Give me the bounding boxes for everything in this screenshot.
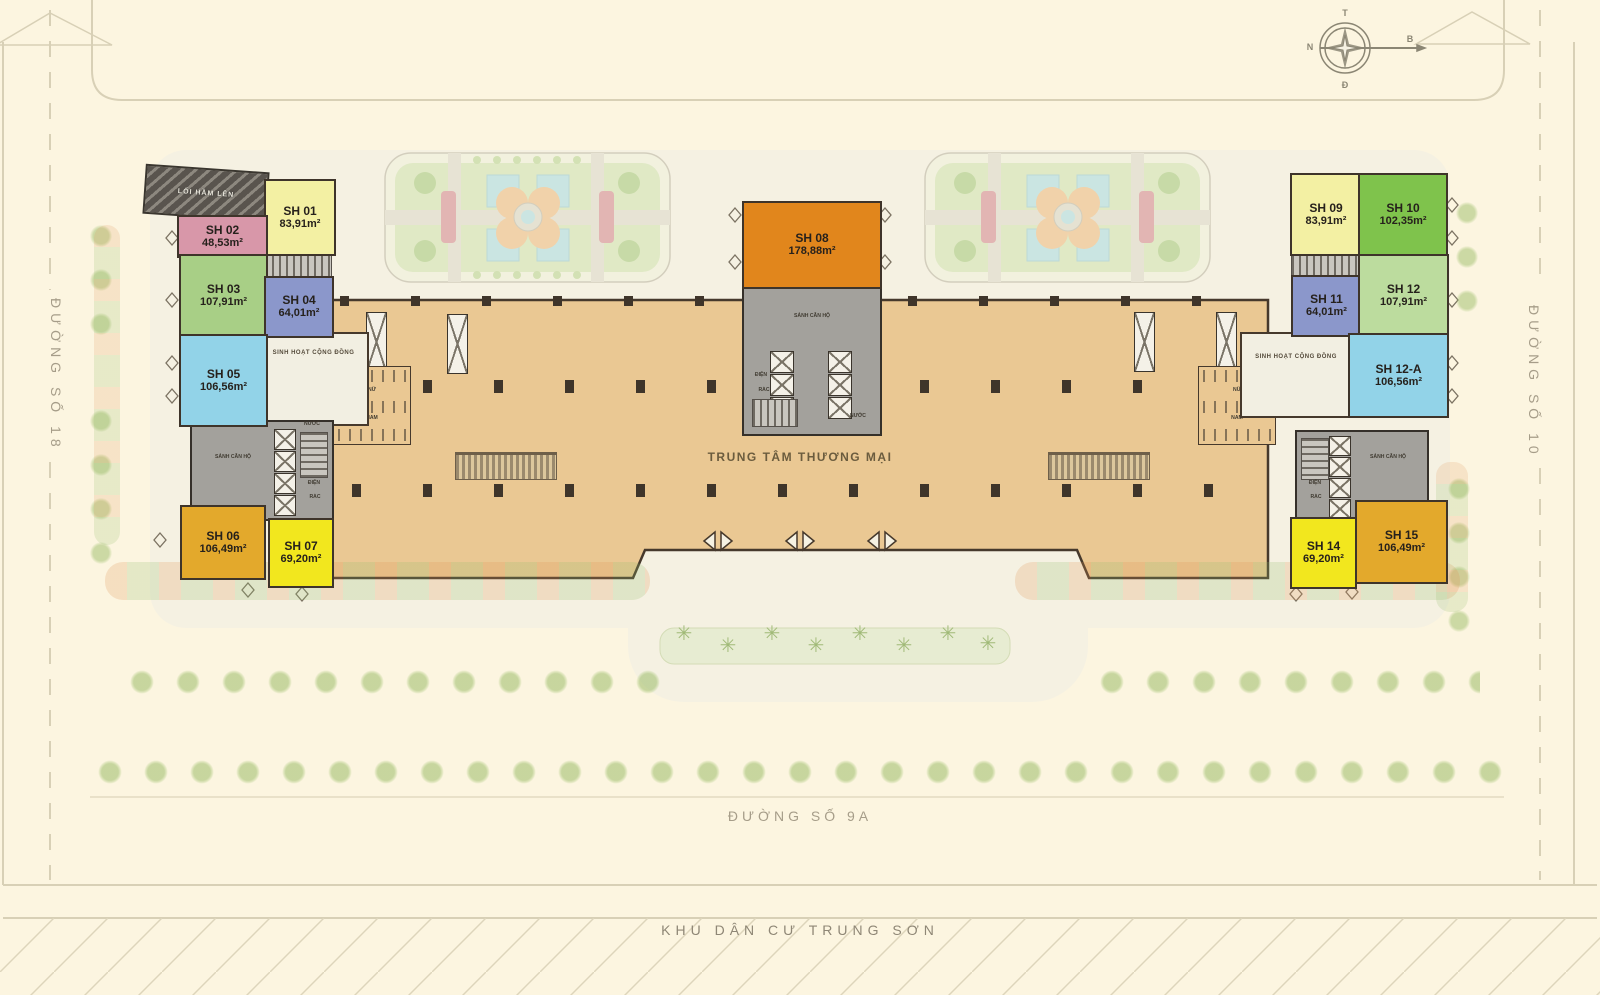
water-room-label: NƯỚC [841,413,875,418]
unit-area: 107,91m² [1380,297,1427,309]
unit-sh-01[interactable]: SH 01 83,91m² [264,179,336,256]
neighbor-roof-right [1416,12,1530,44]
trash-room-label: RÁC [1303,494,1329,499]
unit-area: 107,91m² [200,297,247,309]
unit-sh-15[interactable]: SH 15 106,49m² [1355,500,1448,584]
unit-id: SH 05 [207,368,240,381]
lobby-label: SẢNH CĂN HỘ [1357,454,1420,459]
unit-area: 106,49m² [199,544,246,556]
unit-area: 69,20m² [281,554,322,566]
svg-text:✳: ✳ [808,633,825,657]
unit-area: 64,01m² [279,308,320,320]
svg-text:✳: ✳ [764,621,781,645]
service-shaft [447,314,468,374]
unit-id: SH 12-A [1375,363,1421,376]
stair-core-left [264,253,332,278]
tree-row-site-left [120,660,670,704]
trash-room-label: RÁC [302,494,328,499]
escalator-left [455,452,557,480]
site-plan: ✳✳✳ ✳✳✳ ✳✳ [0,0,1600,995]
unit-id: SH 04 [282,294,315,307]
service-shaft [1134,312,1155,372]
street-label-left: ĐƯỜNG SỐ 18 [30,282,64,468]
basement-ramp: LỐI HẦM LÊN [142,164,269,223]
lobby-label: SẢNH CĂN HỘ [754,313,870,318]
electric-room-label: ĐIỆN [1301,480,1328,485]
unit-sh-10[interactable]: SH 10 102,35m² [1358,173,1448,257]
lobby-label: SẢNH CĂN HỘ [200,454,266,459]
tree-column-right-upper [1446,192,1488,324]
street-label-right: ĐƯỜNG SỐ 10 [1508,282,1542,482]
unit-id: SH 12 [1387,283,1420,296]
unit-area: 83,91m² [1306,216,1347,228]
unit-area: 106,56m² [200,382,247,394]
unit-area: 83,91m² [280,219,321,231]
compass-icon [1320,23,1425,73]
unit-area: 48,53m² [202,238,243,250]
garden-right [925,153,1210,282]
unit-id: SH 09 [1309,202,1342,215]
water-room-label: NƯỚC [295,421,329,426]
unit-id: SH 14 [1307,540,1340,553]
compass-bottom-label: Đ [1339,80,1351,90]
unit-id: SH 11 [1310,293,1343,306]
unit-area: 64,01m² [1306,307,1347,319]
basement-ramp-label: LỐI HẦM LÊN [178,188,235,199]
svg-text:✳: ✳ [676,621,693,645]
community-room-left: SINH HOẠT CỘNG ĐỒNG [258,332,369,426]
svg-text:✳: ✳ [940,621,957,645]
unit-sh-12[interactable]: SH 12 107,91m² [1358,254,1449,337]
community-room-label: SINH HOẠT CỘNG ĐỒNG [1242,354,1350,360]
compass-left-label: N [1304,42,1316,52]
unit-id: SH 15 [1385,529,1418,542]
unit-sh-11[interactable]: SH 11 64,01m² [1291,275,1362,337]
unit-area: 106,56m² [1375,377,1422,389]
unit-id: SH 07 [284,540,317,553]
unit-sh-04[interactable]: SH 04 64,01m² [264,276,334,338]
tree-row-site-right [1090,660,1480,704]
unit-id: SH 03 [207,283,240,296]
electric-room-label: ĐIỆN [748,372,774,377]
svg-text:✳: ✳ [980,631,997,655]
flowerbed-strip-left-edge [94,225,120,545]
unit-id: SH 08 [795,232,828,245]
compass-right-label: B [1404,34,1416,44]
unit-sh-08[interactable]: SH 08 178,88m² [742,201,882,289]
unit-id: SH 10 [1386,202,1419,215]
unit-sh-03[interactable]: SH 03 107,91m² [179,254,268,338]
garden-left [385,153,670,282]
neighbor-roof-left [0,13,112,45]
unit-sh-06[interactable]: SH 06 106,49m² [180,505,266,580]
street-label-bottom: ĐƯỜNG SỐ 9A [640,808,960,824]
tree-row-bottom-road [88,750,1502,794]
unit-sh-07[interactable]: SH 07 69,20m² [268,518,334,588]
compass-top-label: T [1339,8,1351,18]
unit-area: 69,20m² [1303,554,1344,566]
community-room-label: SINH HOẠT CỘNG ĐỒNG [260,350,367,356]
unit-sh-14[interactable]: SH 14 69,20m² [1290,517,1357,589]
service-shaft [1216,312,1237,372]
unit-sh-12a[interactable]: SH 12-A 106,56m² [1348,333,1449,418]
unit-id: SH 01 [283,205,316,218]
unit-area: 102,35m² [1379,216,1426,228]
residential-area-label: KHU DÂN CƯ TRUNG SƠN [560,922,1040,938]
unit-id: SH 02 [206,224,239,237]
mall-label: TRUNG TÂM THƯƠNG MẠI [655,450,945,464]
trash-room-label: RÁC [752,387,776,392]
community-room-right: SINH HOẠT CỘNG ĐỒNG [1240,332,1352,418]
electric-room-label: ĐIỆN [300,480,327,485]
unit-area: 178,88m² [788,246,835,258]
column-row-lower [352,484,1258,497]
svg-text:✳: ✳ [852,621,869,645]
svg-text:✳: ✳ [720,633,737,657]
unit-area: 106,49m² [1378,543,1425,555]
service-shaft [366,312,387,372]
unit-sh-02[interactable]: SH 02 48,53m² [177,215,268,258]
core-center: SẢNH CĂN HỘ ĐIỆN RÁC NƯỚC [742,285,882,436]
unit-sh-05[interactable]: SH 05 106,56m² [179,334,268,427]
unit-id: SH 06 [206,530,239,543]
unit-sh-09[interactable]: SH 09 83,91m² [1290,173,1362,256]
escalator-right [1048,452,1150,480]
svg-text:✳: ✳ [896,633,913,657]
